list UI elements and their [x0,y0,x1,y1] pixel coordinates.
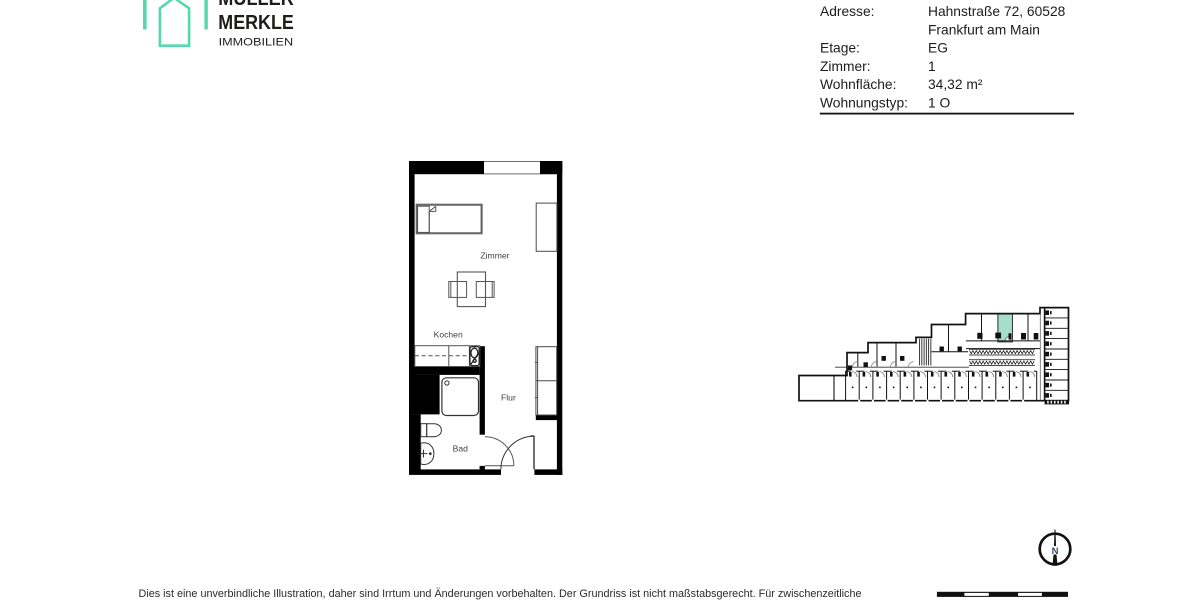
svg-text:IMMOBILIEN: IMMOBILIEN [219,37,294,49]
svg-text:MÜLLER: MÜLLER [218,0,294,10]
svg-text:Flur: Flur [501,392,516,402]
svg-text:Bad: Bad [453,443,469,453]
svg-text:Wohnungstyp:: Wohnungstyp: [820,96,908,111]
svg-text:34,32 m²: 34,32 m² [928,77,983,92]
svg-text:Frankfurt am Main: Frankfurt am Main [928,22,1040,37]
svg-text:1 O: 1 O [928,96,951,111]
svg-text:Adresse:: Adresse: [820,4,874,19]
svg-text:Wohnfläche:: Wohnfläche: [820,77,896,92]
svg-text:Zimmer: Zimmer [480,251,509,261]
svg-text:EG: EG [928,41,948,56]
svg-text:MERKLE: MERKLE [218,11,293,34]
svg-text:Etage:: Etage: [820,41,860,56]
svg-text:Dies ist eine unverbindliche I: Dies ist eine unverbindliche Illustratio… [139,588,862,600]
svg-text:N: N [1052,546,1059,557]
svg-text:Zimmer:: Zimmer: [820,59,871,74]
svg-text:Hahnstraße 72, 60528: Hahnstraße 72, 60528 [928,4,1066,19]
svg-text:1: 1 [928,59,936,74]
svg-text:Kochen: Kochen [434,330,463,340]
